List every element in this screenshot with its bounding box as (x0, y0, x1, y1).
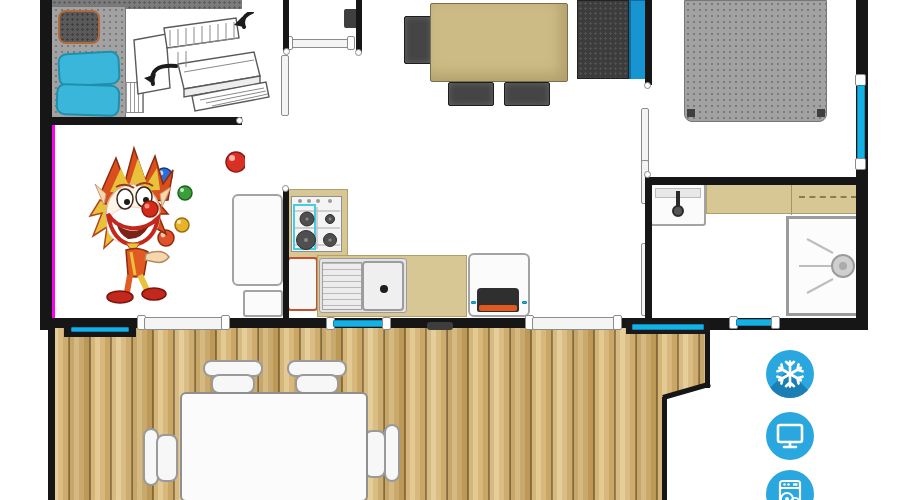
door-step (427, 322, 453, 330)
kitchen-wall (283, 188, 289, 318)
living-bedroom-wall (645, 0, 652, 85)
door-cap (221, 315, 230, 330)
terrace-chair (295, 374, 339, 394)
window (736, 319, 774, 326)
terrace-table (180, 392, 368, 500)
fridge (232, 194, 283, 286)
bedroom-door-leaf (641, 108, 649, 168)
kids-room-wall (40, 117, 242, 125)
clown-illustration (60, 142, 245, 312)
terrace-chair (211, 374, 255, 394)
terrace-chair (156, 434, 178, 482)
bed-foot (687, 109, 695, 117)
wall-cap (283, 48, 290, 55)
sliding-door (144, 317, 224, 330)
door-cap (347, 36, 355, 50)
shower-head-icon (789, 219, 859, 313)
window-cap (382, 317, 391, 330)
bedside-chair (58, 10, 100, 44)
window (857, 85, 865, 159)
appliance-tray (479, 305, 517, 311)
bedroom-bathroom-wall (652, 177, 868, 185)
wall-cap (355, 49, 362, 56)
bunk-bed-illustration (126, 12, 286, 118)
bed-foot (817, 109, 825, 117)
amenity-tv (766, 412, 814, 460)
appliance-mark (471, 301, 476, 304)
deck-edge (662, 397, 667, 500)
dining-chair (504, 82, 550, 106)
double-bed (684, 0, 827, 122)
wall-cap (644, 171, 651, 178)
sofa (577, 0, 629, 79)
counter-vent (799, 196, 857, 198)
sink-drain (380, 285, 388, 293)
dining-chair (404, 16, 432, 64)
window-cap (855, 158, 866, 170)
sink (362, 261, 404, 311)
window (333, 320, 385, 327)
sliding-door (532, 317, 616, 330)
drainboard (322, 262, 362, 310)
tv-icon (775, 422, 805, 450)
window-cap (771, 316, 780, 329)
deck-edge (48, 328, 55, 500)
shower (786, 216, 862, 316)
amenity-air-conditioning (766, 350, 814, 398)
bed-pillow (57, 50, 121, 87)
hall-wall (283, 0, 289, 52)
wall-cap (236, 117, 243, 124)
gas-hob (291, 196, 342, 252)
hall-wall (356, 0, 362, 53)
deck-edge (705, 328, 710, 388)
counter-divider (791, 184, 792, 215)
faucet-icon (672, 205, 684, 217)
door-cap (613, 315, 622, 330)
wall-cap (644, 82, 651, 89)
dining-table (430, 3, 568, 82)
window (71, 327, 129, 332)
left-wall (40, 0, 52, 330)
hall-door-leaf (289, 39, 353, 48)
appliance-mark (522, 301, 527, 304)
kids-room-door-leaf (281, 55, 289, 116)
terrace-chair (384, 424, 400, 482)
amenity-dishwasher (766, 470, 814, 500)
washbasin (650, 183, 706, 226)
window (632, 324, 704, 330)
bed-pillow (55, 83, 120, 117)
dishwasher-icon (775, 479, 805, 500)
wall-cap (282, 185, 289, 192)
dining-chair (448, 82, 494, 106)
snowflake-icon (775, 359, 805, 389)
oven-cabinet (287, 257, 318, 311)
appliance-cabinet (468, 253, 530, 317)
bathroom-counter (706, 183, 866, 214)
floor-plan (0, 0, 900, 500)
bathroom-wall (645, 177, 652, 318)
appliance (477, 288, 519, 312)
cupboard (243, 290, 283, 317)
highlighted-wall-marker (52, 125, 55, 318)
